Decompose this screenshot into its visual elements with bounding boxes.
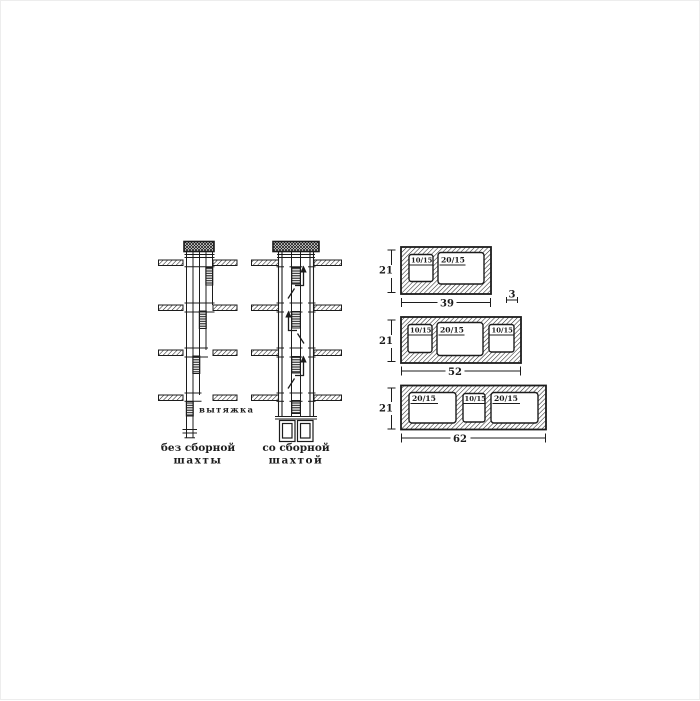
floor-slab xyxy=(314,350,342,356)
shaft-diagram-without-collector: вытяжка без сборной шахты xyxy=(159,242,255,467)
exhaust-grille xyxy=(186,402,193,417)
opening-label: 20/15 xyxy=(440,326,464,335)
riser-grille xyxy=(292,357,301,374)
duct-grille xyxy=(206,268,213,286)
width-dimension-label: 39 xyxy=(440,299,454,310)
floor-slab xyxy=(314,260,342,266)
floor-slab xyxy=(252,305,279,311)
vent-block-section-52: 10/15 20/15 10/15 21 52 xyxy=(379,317,521,378)
left-caption-line1: без сборной xyxy=(161,442,235,454)
opening-label: 10/15 xyxy=(411,257,433,265)
roof-cap xyxy=(184,242,214,252)
floor-slab xyxy=(159,260,184,266)
opening-label: 20/15 xyxy=(412,394,436,403)
wall-thickness-dimension: 3 xyxy=(507,290,518,304)
floor-slab xyxy=(159,305,184,311)
wall-thickness-label: 3 xyxy=(509,290,516,301)
floor-slab xyxy=(159,350,184,356)
right-caption-line2: шахтой xyxy=(269,455,324,467)
opening-label: 10/15 xyxy=(465,395,487,403)
riser-grille xyxy=(292,401,301,414)
width-dimension-label: 62 xyxy=(453,434,467,445)
duct-grille xyxy=(199,311,206,329)
floor-slab xyxy=(314,395,342,401)
opening-label: 20/15 xyxy=(441,256,465,265)
floor-slab xyxy=(213,305,237,311)
basement-cells xyxy=(280,421,314,442)
floor-slab xyxy=(213,260,237,266)
floor-slabs xyxy=(159,260,238,401)
floor-slab xyxy=(159,395,184,401)
opening-label: 10/15 xyxy=(492,327,514,335)
riser-grille xyxy=(292,268,301,285)
exhaust-label: вытяжка xyxy=(199,406,254,416)
vent-block-section-62: 20/15 10/15 20/15 21 62 xyxy=(379,386,546,446)
vent-block-section-39: 10/15 20/15 21 39 3 xyxy=(379,247,517,310)
ventilation-figure: вытяжка без сборной шахты xyxy=(1,1,700,701)
scanned-figure-page: вытяжка без сборной шахты xyxy=(0,0,700,700)
height-dimension-label: 21 xyxy=(379,336,393,347)
basement-cell-inner xyxy=(283,424,293,439)
floor-slab xyxy=(314,305,342,311)
opening-label: 20/15 xyxy=(494,394,518,403)
width-dimension-label: 52 xyxy=(448,367,462,378)
basement-cell-inner xyxy=(301,424,311,439)
left-caption-line2: шахты xyxy=(174,455,223,467)
floor-slab xyxy=(252,395,279,401)
height-dimension-label: 21 xyxy=(379,404,393,415)
riser-grilles xyxy=(292,268,301,414)
right-caption-line1: со сборной xyxy=(262,442,329,454)
riser-grille xyxy=(292,312,301,329)
floor-slab xyxy=(252,350,279,356)
shaft-diagram-with-collector: со сборной шахтой xyxy=(252,242,342,467)
floor-slab xyxy=(213,350,237,356)
opening-label: 10/15 xyxy=(410,327,432,335)
width-dimension xyxy=(402,434,546,443)
height-dimension-label: 21 xyxy=(379,266,393,277)
roof-cap xyxy=(273,242,319,252)
duct-grille xyxy=(193,356,200,374)
floor-slab xyxy=(252,260,279,266)
floor-slab xyxy=(213,395,237,401)
